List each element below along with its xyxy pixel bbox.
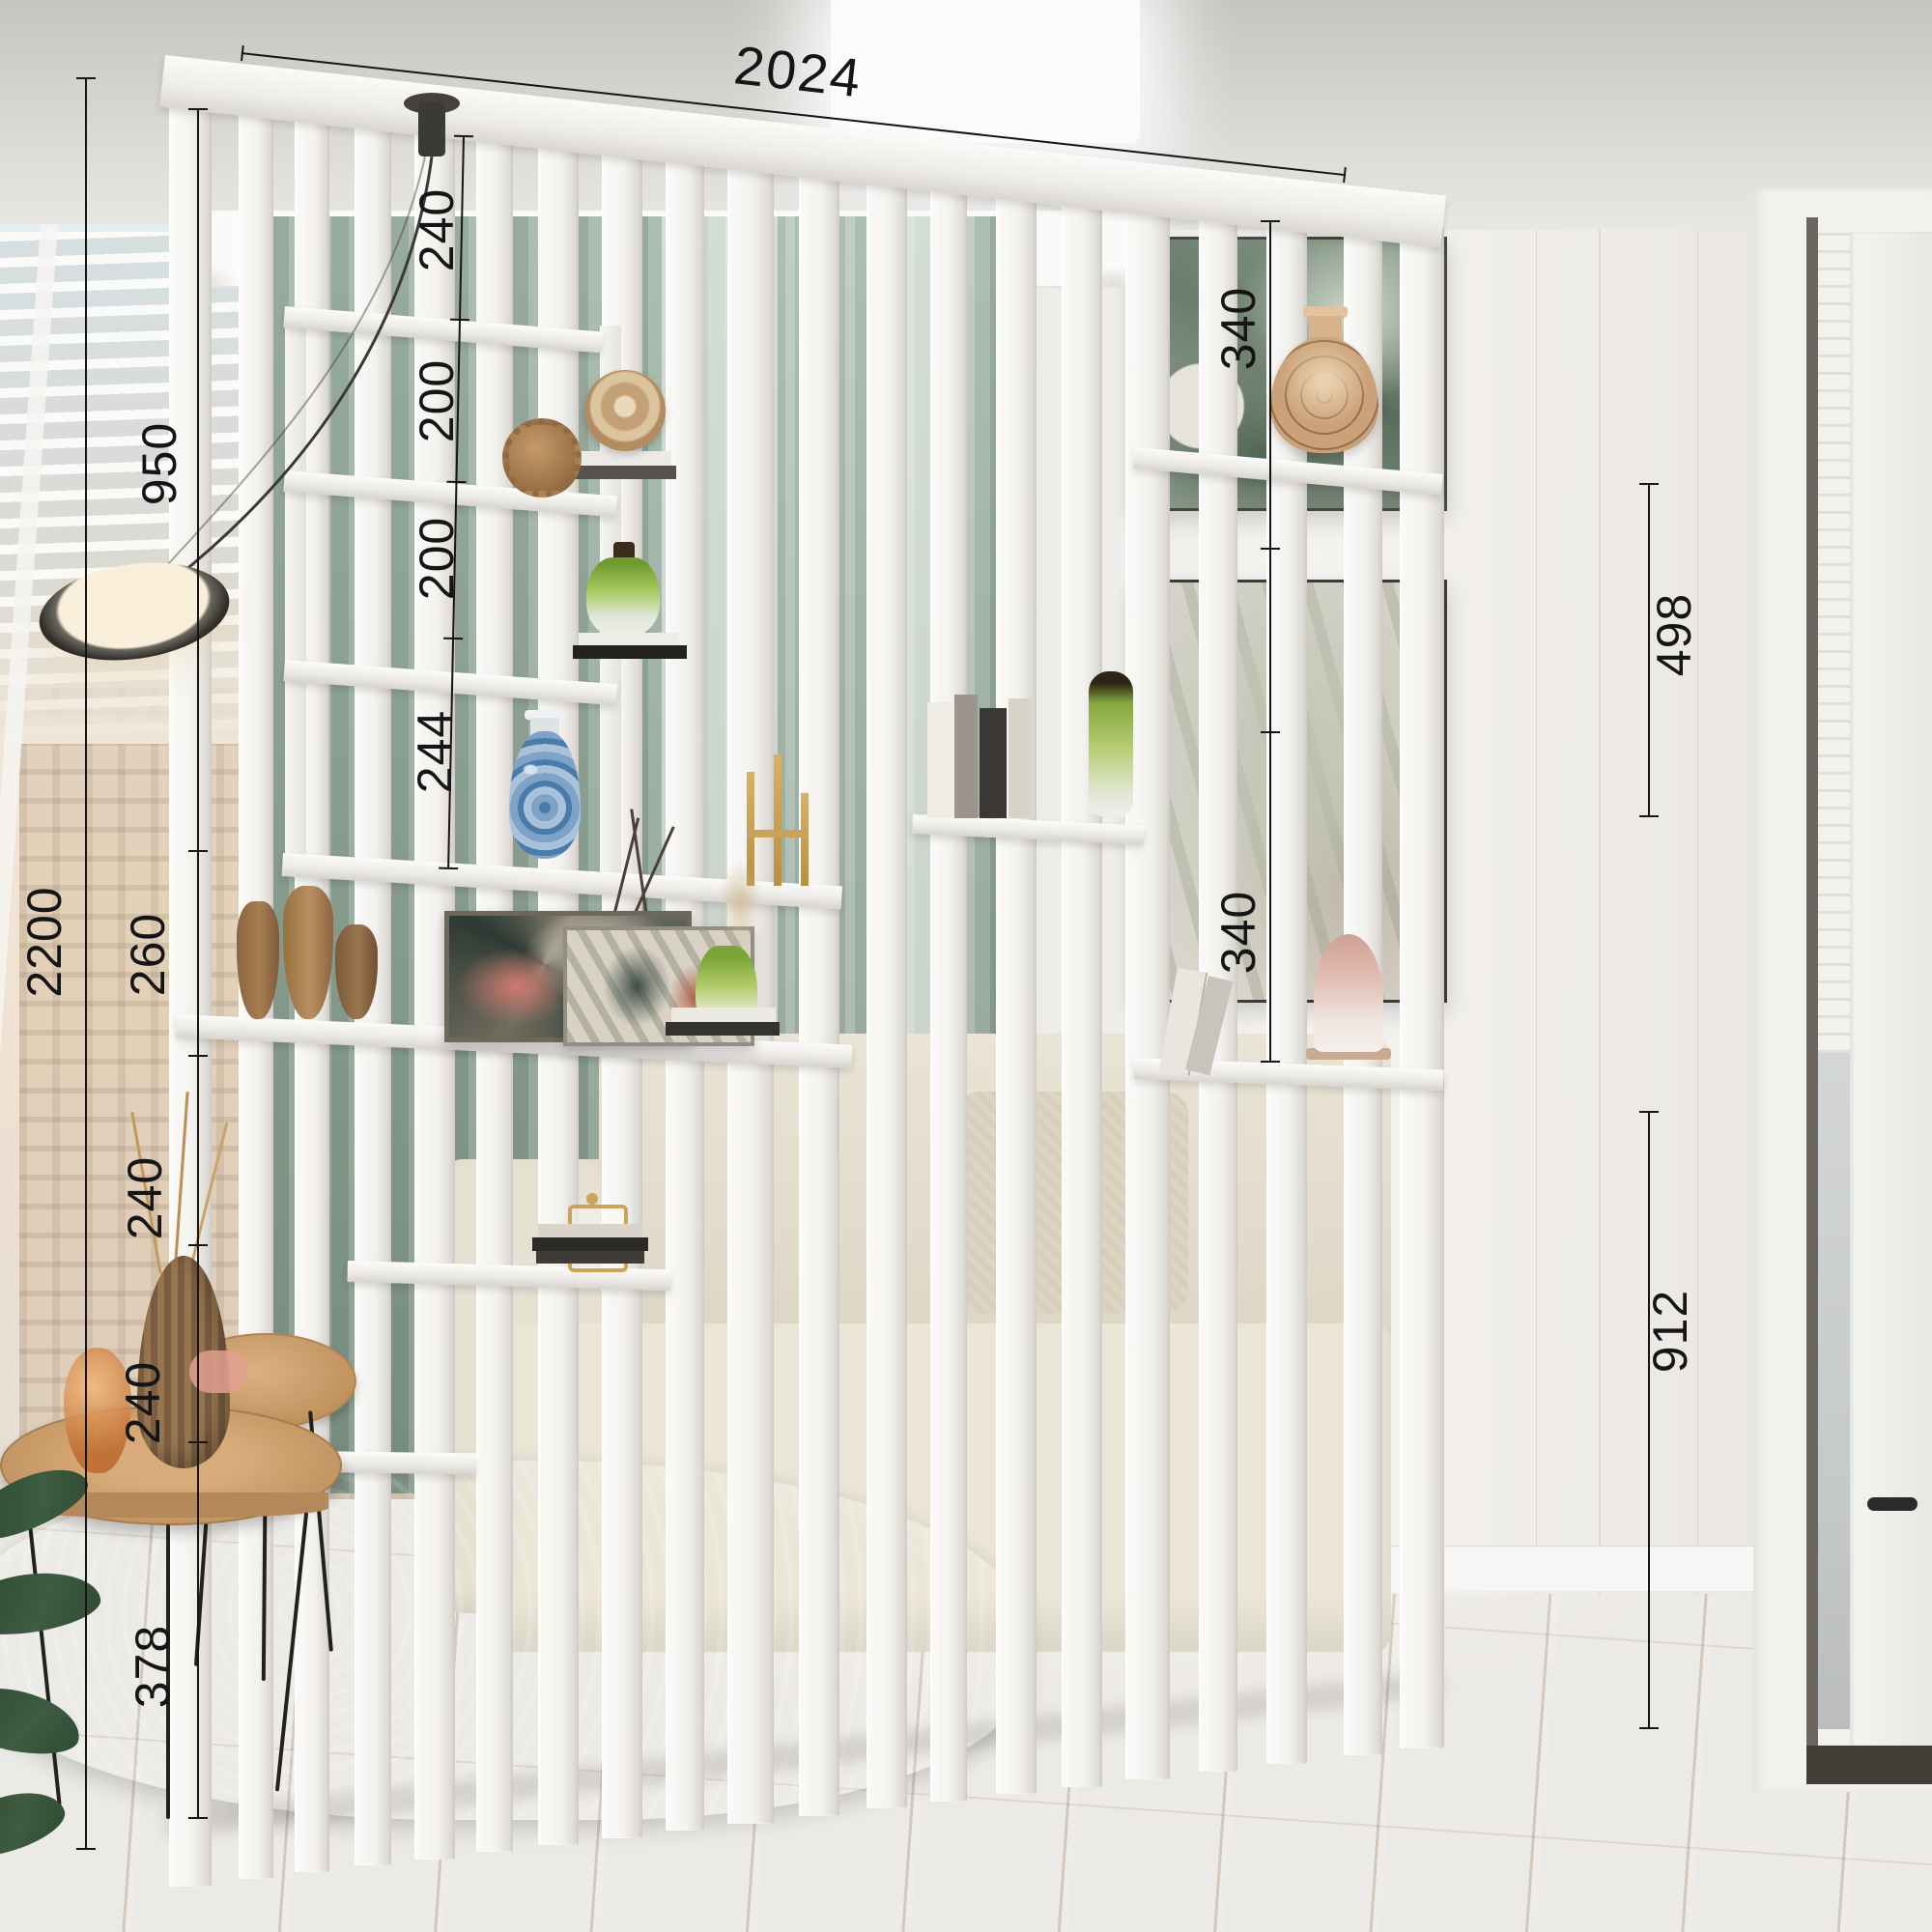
candelabra-arm bbox=[774, 754, 781, 886]
dim-label-upper-left: 950 bbox=[133, 382, 185, 546]
leaf bbox=[0, 1780, 71, 1867]
dim-tick bbox=[76, 77, 96, 79]
candelabra-arm bbox=[801, 793, 809, 886]
leaf bbox=[0, 1455, 96, 1551]
dim-tick bbox=[1639, 1727, 1659, 1729]
dim-tick bbox=[188, 1441, 208, 1443]
dim-label-left-shelf-3: 244 bbox=[409, 669, 461, 834]
dim-label-left-lower-2: 240 bbox=[117, 1321, 169, 1485]
dim-label-overall-height: 2200 bbox=[18, 860, 71, 1024]
divider-slat bbox=[867, 169, 907, 1808]
dim-tick bbox=[454, 135, 473, 137]
interior-divider-dimension-render: 2024 2200 950 260 240 240 378 240 200 20… bbox=[0, 0, 1932, 1932]
book-stack bbox=[671, 1008, 776, 1022]
dim-label-left-lower-1: 240 bbox=[119, 1116, 171, 1280]
dim-tick bbox=[1639, 815, 1659, 817]
book-spine bbox=[1009, 698, 1032, 818]
dim-tick bbox=[188, 1055, 208, 1057]
dim-tick bbox=[76, 1848, 96, 1850]
divider-slat bbox=[1125, 197, 1170, 1779]
doorway bbox=[1753, 188, 1932, 1792]
divider-slat bbox=[1400, 227, 1444, 1749]
book-stack bbox=[666, 1022, 780, 1036]
book-spine bbox=[980, 708, 1007, 818]
spiky-wood-ball-decor bbox=[502, 418, 582, 497]
wall-groove bbox=[1536, 230, 1537, 1594]
open-door-leaf bbox=[1850, 232, 1932, 1763]
book-stack bbox=[575, 466, 676, 479]
book-stack bbox=[580, 451, 671, 466]
dim-label-right-inner-0: 340 bbox=[1212, 246, 1264, 411]
dim-tick bbox=[1261, 548, 1280, 550]
wall-groove bbox=[1697, 230, 1698, 1594]
door-reveal bbox=[1806, 217, 1818, 1746]
standing-books bbox=[927, 691, 1036, 818]
dim-tick bbox=[1261, 731, 1280, 733]
dim-line-right-lower bbox=[1648, 1111, 1650, 1729]
wall-groove bbox=[1599, 230, 1601, 1594]
book-stack bbox=[579, 633, 679, 645]
dim-label-left-lower-0: 260 bbox=[122, 872, 174, 1037]
dim-tick bbox=[1261, 1061, 1280, 1063]
dim-label-left-shelf-0: 240 bbox=[411, 148, 463, 312]
dim-tick bbox=[1639, 483, 1659, 485]
dim-tick bbox=[1639, 1111, 1659, 1113]
dim-line-left-segments bbox=[197, 108, 199, 1819]
dried-pampas bbox=[718, 861, 762, 946]
dim-label-right-inner-1: 340 bbox=[1212, 850, 1264, 1014]
door-threshold bbox=[1806, 1746, 1932, 1784]
lantern-knob bbox=[586, 1193, 598, 1205]
dim-tick bbox=[188, 1244, 208, 1246]
divider-slat bbox=[799, 161, 839, 1816]
dim-label-left-lower-3: 378 bbox=[127, 1584, 179, 1748]
green-ombre-vase bbox=[586, 557, 660, 637]
dim-tick bbox=[188, 850, 208, 852]
book-stack bbox=[536, 1251, 644, 1264]
shelf-side-board bbox=[285, 312, 306, 876]
carved-medallion-decor bbox=[584, 370, 666, 451]
door-handle bbox=[1867, 1497, 1918, 1511]
tall-green-vase bbox=[1089, 671, 1133, 816]
dim-label-right-outer-1: 912 bbox=[1644, 1249, 1696, 1413]
candelabra-bar bbox=[747, 830, 809, 838]
dim-label-left-shelf-2: 200 bbox=[411, 476, 463, 640]
book-stack bbox=[573, 645, 687, 659]
divider-slat bbox=[930, 176, 967, 1802]
book-stack bbox=[538, 1224, 642, 1237]
dim-label-left-shelf-1: 200 bbox=[411, 319, 463, 483]
dim-tick bbox=[439, 867, 458, 869]
leaf bbox=[0, 1677, 86, 1764]
dim-tick bbox=[188, 1817, 208, 1819]
leaf bbox=[0, 1565, 103, 1642]
book-spine bbox=[954, 695, 978, 818]
dim-label-right-outer-0: 498 bbox=[1648, 553, 1700, 717]
divider-slat bbox=[1062, 190, 1102, 1787]
blue-porcelain-vase bbox=[509, 731, 581, 859]
table-leg bbox=[275, 1513, 308, 1792]
dim-tick bbox=[188, 108, 208, 110]
book-stack bbox=[532, 1237, 648, 1251]
dim-line-overall-height bbox=[85, 77, 87, 1850]
dim-tick bbox=[1261, 220, 1280, 222]
book-spine bbox=[927, 702, 952, 818]
divider-slat bbox=[996, 183, 1037, 1794]
dim-line-right-inner bbox=[1269, 220, 1271, 1063]
